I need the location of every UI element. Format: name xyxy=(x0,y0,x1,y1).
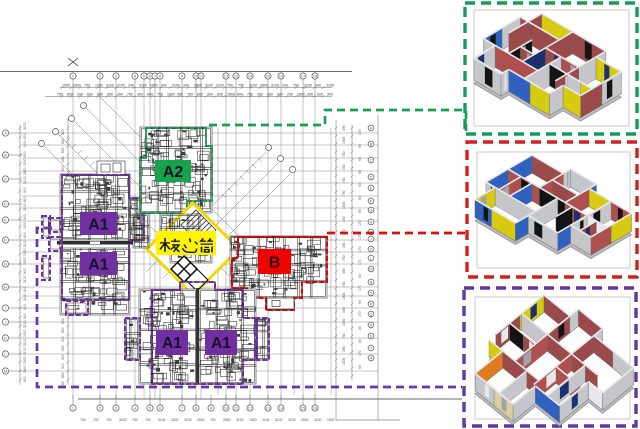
svg-text:650: 650 xyxy=(61,345,65,351)
svg-text:600: 600 xyxy=(97,93,103,97)
svg-text:340: 340 xyxy=(315,84,321,88)
svg-text:B: B xyxy=(4,153,7,158)
svg-text:1500: 1500 xyxy=(23,257,27,265)
svg-text:3100: 3100 xyxy=(314,418,322,422)
svg-text:L: L xyxy=(370,257,372,261)
svg-text:2800: 2800 xyxy=(171,418,179,422)
svg-text:600: 600 xyxy=(217,93,223,97)
svg-text:300: 300 xyxy=(61,354,65,360)
svg-text:300: 300 xyxy=(61,336,65,342)
svg-text:C: C xyxy=(370,159,373,163)
svg-text:1500: 1500 xyxy=(249,418,257,422)
svg-text:90: 90 xyxy=(358,326,362,330)
svg-text:750: 750 xyxy=(293,84,299,88)
svg-text:17: 17 xyxy=(301,74,306,79)
svg-text:300: 300 xyxy=(207,93,213,97)
svg-text:650: 650 xyxy=(61,318,65,324)
svg-text:3100: 3100 xyxy=(288,418,296,422)
svg-text:B: B xyxy=(370,143,373,147)
svg-text:3100: 3100 xyxy=(184,418,192,422)
svg-text:750: 750 xyxy=(57,93,63,97)
svg-text:750: 750 xyxy=(238,84,244,88)
svg-text:3100: 3100 xyxy=(23,176,27,184)
svg-text:750: 750 xyxy=(227,84,233,88)
svg-text:300: 300 xyxy=(342,125,346,131)
svg-text:90: 90 xyxy=(358,339,362,343)
svg-text:650: 650 xyxy=(61,156,65,162)
svg-text:A2: A2 xyxy=(163,164,184,181)
svg-text:2800: 2800 xyxy=(194,84,202,88)
svg-text:750: 750 xyxy=(106,418,112,422)
svg-text:600: 600 xyxy=(237,93,243,97)
svg-text:S: S xyxy=(370,335,373,339)
svg-text:300: 300 xyxy=(137,93,143,97)
svg-text:750: 750 xyxy=(342,151,346,157)
svg-text:E: E xyxy=(4,218,7,223)
svg-text:2800: 2800 xyxy=(197,418,205,422)
svg-text:3100: 3100 xyxy=(23,239,27,247)
svg-text:170: 170 xyxy=(358,246,362,252)
svg-text:K: K xyxy=(370,248,373,252)
svg-text:600: 600 xyxy=(197,93,203,97)
svg-text:3100: 3100 xyxy=(23,122,27,130)
svg-text:90: 90 xyxy=(358,365,362,369)
svg-text:1500: 1500 xyxy=(23,158,27,166)
svg-text:G: G xyxy=(370,209,373,213)
svg-text:3100: 3100 xyxy=(304,84,312,88)
svg-text:A1: A1 xyxy=(88,216,109,233)
svg-text:18: 18 xyxy=(313,74,318,79)
svg-text:16: 16 xyxy=(279,74,284,79)
svg-text:1500: 1500 xyxy=(342,136,346,144)
svg-text:750: 750 xyxy=(342,190,346,196)
svg-text:300: 300 xyxy=(61,363,65,369)
svg-text:340: 340 xyxy=(161,84,167,88)
svg-text:300: 300 xyxy=(327,93,333,97)
svg-text:600: 600 xyxy=(277,93,283,97)
svg-text:750: 750 xyxy=(247,93,253,97)
svg-text:750: 750 xyxy=(187,93,193,97)
svg-text:M: M xyxy=(4,369,7,374)
svg-text:1500: 1500 xyxy=(342,201,346,209)
svg-text:170: 170 xyxy=(358,311,362,317)
svg-text:A: A xyxy=(370,357,373,361)
svg-text:3100: 3100 xyxy=(172,84,180,88)
svg-text:P: P xyxy=(370,303,373,307)
svg-text:900: 900 xyxy=(23,376,27,382)
svg-text:600: 600 xyxy=(317,93,323,97)
svg-text:1500: 1500 xyxy=(62,84,70,88)
svg-text:12: 12 xyxy=(248,406,253,411)
svg-text:2800: 2800 xyxy=(260,84,268,88)
svg-text:J: J xyxy=(370,238,372,242)
svg-text:650: 650 xyxy=(61,327,65,333)
svg-text:3100: 3100 xyxy=(216,84,224,88)
svg-text:300: 300 xyxy=(342,242,346,248)
svg-text:340: 340 xyxy=(183,84,189,88)
svg-text:O: O xyxy=(370,292,373,296)
svg-text:3100: 3100 xyxy=(262,418,270,422)
svg-text:3100: 3100 xyxy=(139,84,147,88)
svg-text:600: 600 xyxy=(147,93,153,97)
svg-text:3100: 3100 xyxy=(23,275,27,283)
svg-text:750: 750 xyxy=(342,333,346,339)
svg-text:650: 650 xyxy=(61,372,65,378)
svg-text:90: 90 xyxy=(358,300,362,304)
svg-text:1200: 1200 xyxy=(95,84,103,88)
svg-text:15: 15 xyxy=(301,406,306,411)
svg-text:300: 300 xyxy=(257,93,263,97)
svg-text:13: 13 xyxy=(234,74,239,79)
svg-text:3100: 3100 xyxy=(23,347,27,355)
svg-text:1500: 1500 xyxy=(342,292,346,300)
svg-text:C: C xyxy=(4,177,7,182)
svg-text:300: 300 xyxy=(342,307,346,313)
svg-text:300: 300 xyxy=(307,93,313,97)
svg-text:1500: 1500 xyxy=(23,221,27,229)
svg-text:340: 340 xyxy=(128,84,134,88)
svg-text:3100: 3100 xyxy=(117,84,125,88)
svg-text:3100: 3100 xyxy=(23,293,27,301)
svg-text:3100: 3100 xyxy=(326,84,334,88)
svg-text:14: 14 xyxy=(279,406,284,411)
svg-text:1500: 1500 xyxy=(342,318,346,326)
svg-text:3100: 3100 xyxy=(23,320,27,328)
svg-text:1500: 1500 xyxy=(327,418,335,422)
svg-text:R: R xyxy=(370,324,373,328)
svg-text:750: 750 xyxy=(287,93,293,97)
svg-text:I: I xyxy=(5,306,6,311)
svg-text:3100: 3100 xyxy=(106,84,114,88)
svg-text:90: 90 xyxy=(358,170,362,174)
svg-text:G: G xyxy=(4,262,7,267)
svg-text:90: 90 xyxy=(358,144,362,148)
svg-text:900: 900 xyxy=(23,196,27,202)
svg-text:D: D xyxy=(4,202,7,207)
svg-text:90: 90 xyxy=(358,196,362,200)
svg-text:1800: 1800 xyxy=(227,93,235,97)
svg-text:650: 650 xyxy=(61,147,65,153)
svg-text:170: 170 xyxy=(358,259,362,265)
svg-text:750: 750 xyxy=(210,418,216,422)
svg-text:A1: A1 xyxy=(211,335,231,352)
svg-text:A1: A1 xyxy=(162,335,182,352)
svg-text:K: K xyxy=(4,336,7,341)
svg-text:B: B xyxy=(269,254,281,271)
svg-text:750: 750 xyxy=(84,84,90,88)
svg-text:950: 950 xyxy=(177,93,183,97)
svg-text:900: 900 xyxy=(23,133,27,139)
svg-text:750: 750 xyxy=(342,177,346,183)
svg-text:H: H xyxy=(4,285,7,290)
svg-text:2800: 2800 xyxy=(301,418,309,422)
svg-text:H: H xyxy=(370,221,373,225)
svg-text:J: J xyxy=(5,320,7,325)
svg-text:1500: 1500 xyxy=(150,84,158,88)
svg-text:16: 16 xyxy=(313,406,318,411)
svg-text:600: 600 xyxy=(267,93,273,97)
svg-text:1500: 1500 xyxy=(23,356,27,364)
svg-text:900: 900 xyxy=(23,151,27,157)
svg-text:1800: 1800 xyxy=(297,93,305,97)
svg-text:3100: 3100 xyxy=(23,338,27,346)
svg-text:2800: 2800 xyxy=(23,365,27,373)
svg-text:300: 300 xyxy=(342,164,346,170)
svg-text:600: 600 xyxy=(67,93,73,97)
svg-text:3100: 3100 xyxy=(236,418,244,422)
svg-text:M: M xyxy=(369,268,372,272)
svg-text:1500: 1500 xyxy=(342,357,346,365)
svg-text:600: 600 xyxy=(87,93,93,97)
svg-text:750: 750 xyxy=(342,281,346,287)
svg-text:1500: 1500 xyxy=(23,329,27,337)
svg-text:13: 13 xyxy=(266,406,271,411)
svg-text:90: 90 xyxy=(358,183,362,187)
svg-text:750: 750 xyxy=(145,418,151,422)
svg-text:900: 900 xyxy=(23,214,27,220)
svg-text:170: 170 xyxy=(358,350,362,356)
svg-text:A: A xyxy=(4,131,7,136)
svg-text:900: 900 xyxy=(23,304,27,310)
svg-text:750: 750 xyxy=(80,418,86,422)
svg-text:750: 750 xyxy=(93,418,99,422)
svg-text:E: E xyxy=(370,187,373,191)
svg-text:900: 900 xyxy=(23,232,27,238)
svg-text:A1: A1 xyxy=(88,256,109,273)
svg-text:3100: 3100 xyxy=(23,203,27,211)
svg-text:170: 170 xyxy=(358,285,362,291)
svg-text:950: 950 xyxy=(107,93,113,97)
svg-text:3100: 3100 xyxy=(271,84,279,88)
svg-text:14: 14 xyxy=(248,74,253,79)
svg-text:3100: 3100 xyxy=(158,418,166,422)
svg-text:N: N xyxy=(370,281,373,285)
svg-text:1500: 1500 xyxy=(23,248,27,256)
svg-text:3100: 3100 xyxy=(275,418,283,422)
svg-text:3100: 3100 xyxy=(205,84,213,88)
svg-text:12: 12 xyxy=(224,74,229,79)
svg-text:750: 750 xyxy=(132,418,138,422)
svg-text:300: 300 xyxy=(117,93,123,97)
svg-text:1800: 1800 xyxy=(167,93,175,97)
svg-text:2800: 2800 xyxy=(23,167,27,175)
svg-text:Q: Q xyxy=(370,313,373,317)
svg-text:10: 10 xyxy=(224,406,229,411)
svg-text:90: 90 xyxy=(358,274,362,278)
svg-text:15: 15 xyxy=(266,74,271,79)
svg-text:2800: 2800 xyxy=(223,418,231,422)
svg-text:900: 900 xyxy=(23,187,27,193)
svg-text:900: 900 xyxy=(23,268,27,274)
svg-text:170: 170 xyxy=(358,129,362,135)
svg-text:900: 900 xyxy=(23,313,27,319)
svg-text:300: 300 xyxy=(342,216,346,222)
svg-text:A: A xyxy=(370,127,373,131)
svg-text:300: 300 xyxy=(77,93,83,97)
svg-text:D: D xyxy=(370,176,373,180)
svg-text:900: 900 xyxy=(23,286,27,292)
svg-text:750: 750 xyxy=(127,93,133,97)
svg-text:1500: 1500 xyxy=(23,140,27,148)
svg-text:2800: 2800 xyxy=(73,84,81,88)
svg-text:750: 750 xyxy=(157,93,163,97)
svg-text:90: 90 xyxy=(358,209,362,213)
svg-text:3100: 3100 xyxy=(249,84,257,88)
svg-text:170: 170 xyxy=(358,220,362,226)
svg-text:750: 750 xyxy=(342,255,346,261)
svg-text:300: 300 xyxy=(342,268,346,274)
svg-text:90: 90 xyxy=(358,157,362,161)
svg-text:3100: 3100 xyxy=(119,418,127,422)
svg-text:300: 300 xyxy=(342,346,346,352)
svg-text:340: 340 xyxy=(282,84,288,88)
